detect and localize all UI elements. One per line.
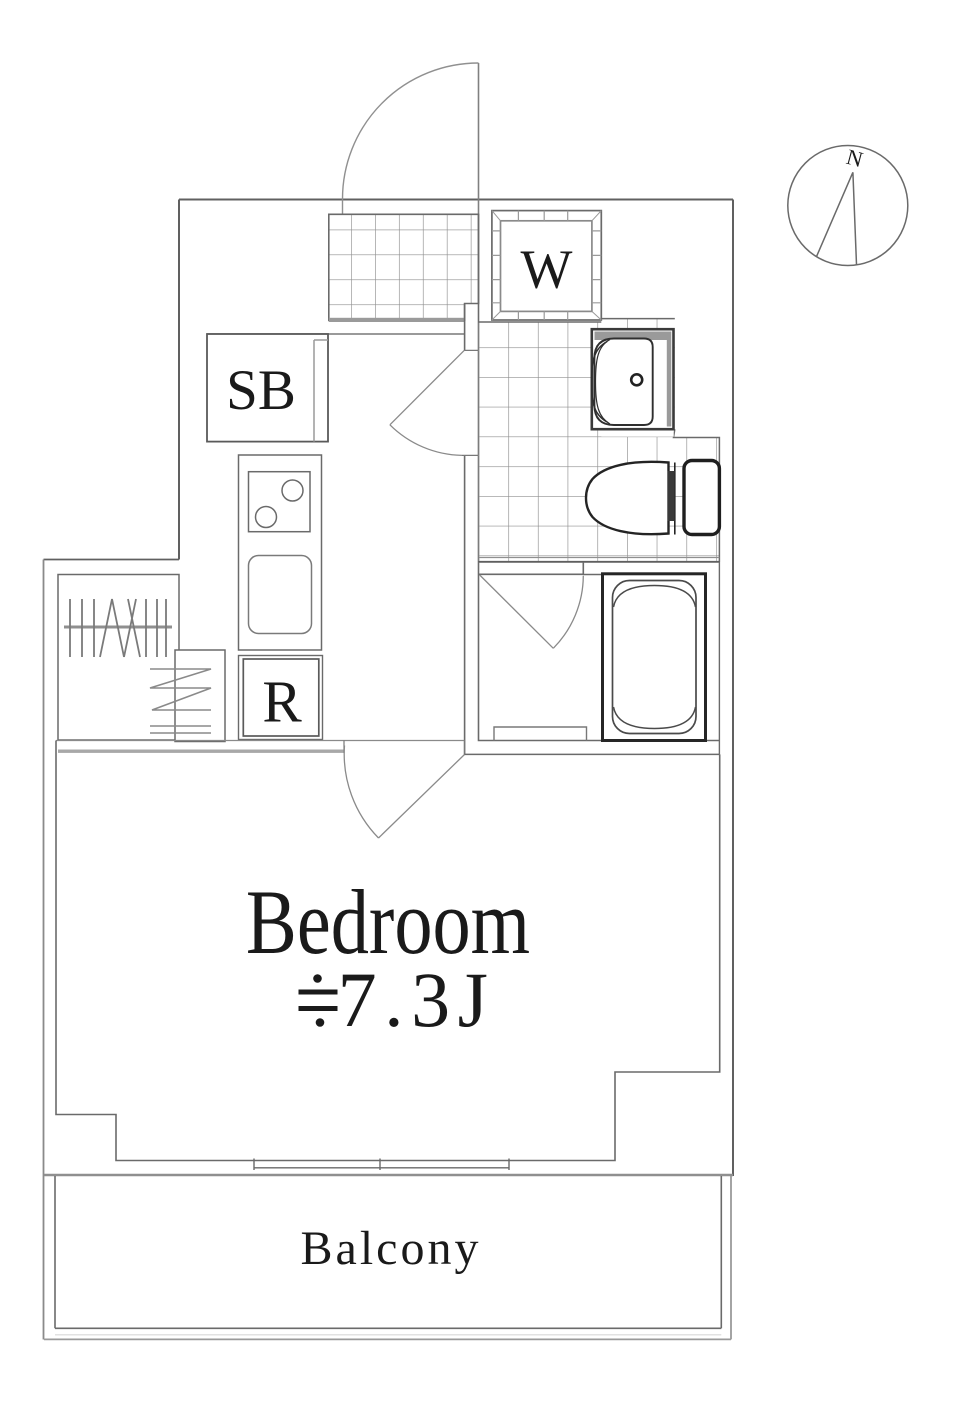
svg-text:7.3J: 7.3J <box>338 956 496 1043</box>
svg-text:R: R <box>262 669 302 735</box>
svg-text:Balcony: Balcony <box>301 1222 482 1275</box>
svg-text:W: W <box>521 239 573 300</box>
svg-text:SB: SB <box>226 359 296 422</box>
